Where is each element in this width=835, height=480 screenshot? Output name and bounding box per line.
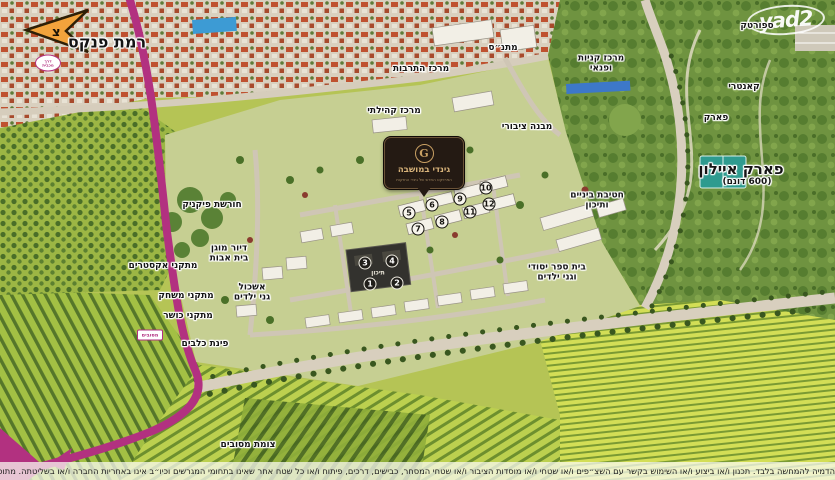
building-number-marker: 9 bbox=[454, 193, 467, 206]
building-number-marker: 5 bbox=[403, 207, 416, 220]
high-school-roof-label: תיכון bbox=[371, 270, 384, 277]
building-number-marker: 12 bbox=[483, 198, 496, 211]
road-badge-south: מסובים bbox=[137, 330, 163, 341]
building-number-marker: 7 bbox=[412, 223, 425, 236]
building-number-marker: 10 bbox=[480, 182, 493, 195]
project-logo-balloon: G גינדי במושבה הפרויקט החדש של גינדי החז… bbox=[384, 137, 464, 189]
building-number-marker: 3 bbox=[359, 257, 372, 270]
building-number-marker: 1 bbox=[364, 278, 377, 291]
svg-text:צ: צ bbox=[52, 25, 61, 40]
project-brand-name: גינדי במושבה bbox=[398, 165, 450, 175]
legal-disclaimer: הדמיה להמחשה בלבד. תכנון ו/או ביצוע ו/או… bbox=[0, 462, 835, 480]
building-number-marker: 2 bbox=[391, 277, 404, 290]
aerial-photo-artwork bbox=[0, 0, 835, 480]
road-badge-north: דרך מכבית bbox=[35, 55, 61, 72]
building-number-marker: 4 bbox=[386, 255, 399, 268]
building-number-marker: 6 bbox=[426, 199, 439, 212]
project-tagline: הפרויקט החדש של גינדי החזקות bbox=[396, 177, 452, 182]
building-number-marker: 8 bbox=[436, 216, 449, 229]
masterplan-image: צ yad2 G גינדי במושבה הפרויקט החדש של גי… bbox=[0, 0, 835, 480]
building-number-marker: 11 bbox=[464, 206, 477, 219]
north-compass-icon: צ bbox=[22, 4, 96, 56]
gindi-monogram-icon: G bbox=[415, 144, 434, 163]
